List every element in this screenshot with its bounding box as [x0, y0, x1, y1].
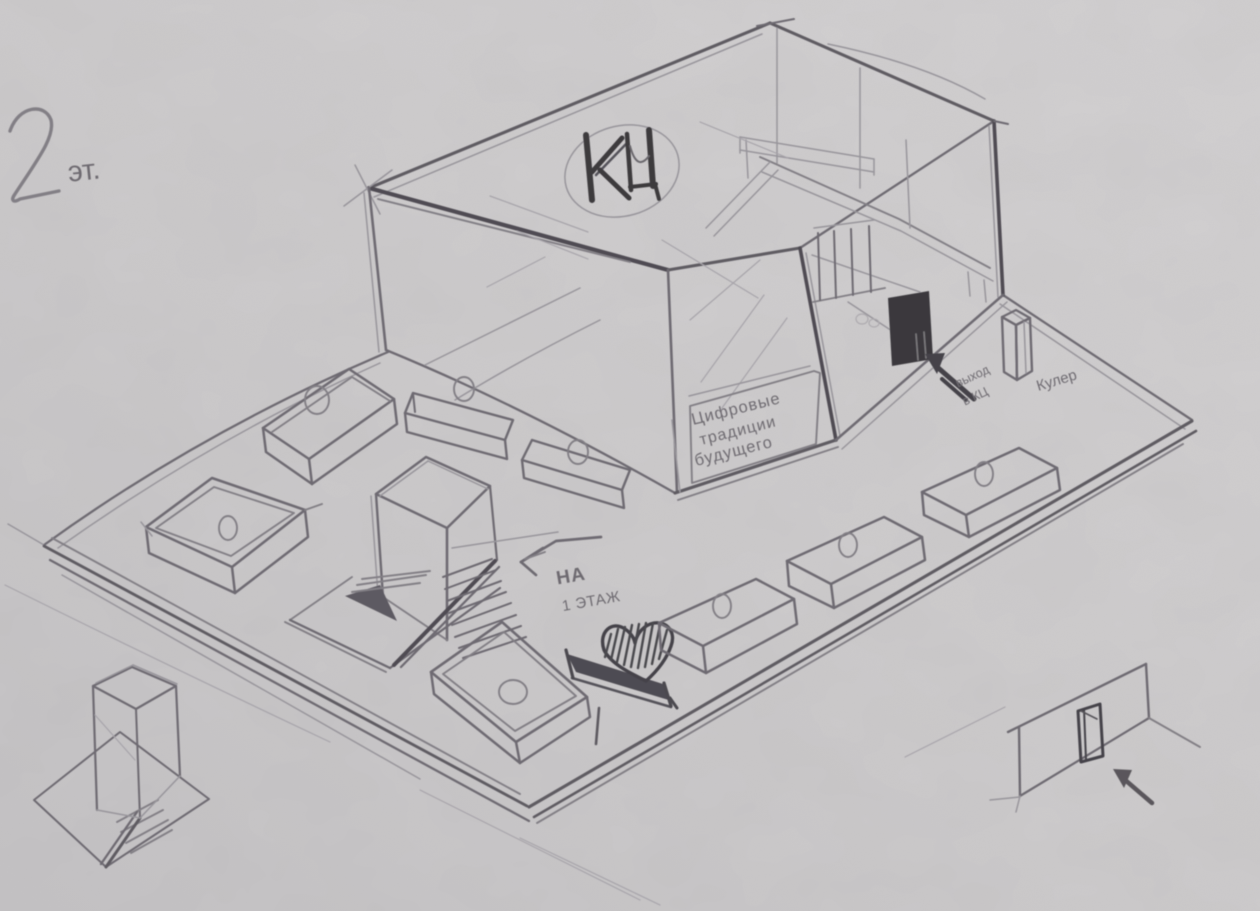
svg-text:эт.: эт.: [66, 153, 101, 188]
